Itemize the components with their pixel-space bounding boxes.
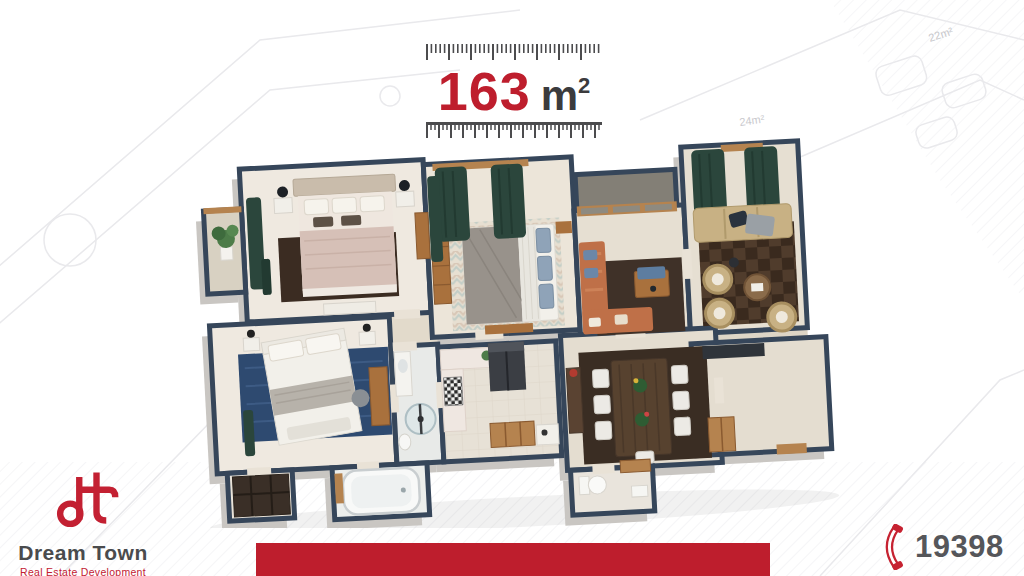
dresser xyxy=(323,301,376,315)
brand-logo: Dream Town Real Estate Development xyxy=(2,468,164,576)
wood-cabinet xyxy=(415,212,430,259)
wood-door xyxy=(620,459,651,473)
phone-icon xyxy=(872,524,906,570)
bathroom-2-furniture xyxy=(334,467,420,515)
closet-furniture xyxy=(232,474,290,517)
nightstand xyxy=(555,221,572,234)
ground-shadow xyxy=(209,480,840,528)
stove xyxy=(444,377,463,406)
bed-master xyxy=(462,224,559,325)
footer-accent-bar xyxy=(256,543,770,576)
nightstand xyxy=(274,197,293,213)
curtain-green xyxy=(261,259,272,295)
phone-number: 19398 xyxy=(915,529,1004,565)
desk xyxy=(369,367,390,426)
washbasin xyxy=(631,485,648,497)
floor-plan-render xyxy=(185,128,840,528)
vanity xyxy=(394,352,412,397)
toilet xyxy=(398,434,411,451)
entrance-door xyxy=(776,443,806,455)
round-table xyxy=(744,274,771,301)
wood-cabinets xyxy=(490,421,535,447)
bed-double xyxy=(298,191,397,297)
area-value: 163 xyxy=(438,64,531,118)
area-unit-base: m xyxy=(541,72,578,119)
area-figure: 163 m2 xyxy=(438,64,591,118)
plant-pot xyxy=(220,247,233,261)
dining-room-furniture xyxy=(565,346,712,467)
sofa-beige xyxy=(693,203,793,242)
brand-name: Dream Town xyxy=(2,541,164,565)
faint-area-label: 24m² xyxy=(739,113,766,128)
refrigerator xyxy=(488,342,526,392)
hatch-band-top-right xyxy=(830,0,1024,300)
counter xyxy=(536,424,559,445)
nightstand xyxy=(396,191,415,207)
bed-double xyxy=(261,328,362,445)
contact-block: 19398 xyxy=(872,524,1004,570)
toilet xyxy=(579,475,607,494)
brand-tagline: Real Estate Development xyxy=(2,566,164,576)
dt-monogram-icon xyxy=(47,468,119,540)
area-unit-sup: 2 xyxy=(578,73,590,98)
wood-shelf xyxy=(334,473,344,503)
marketing-slide: 22m² 24m² 163 m2 xyxy=(0,0,1024,576)
nightstand xyxy=(359,331,376,345)
area-unit: m2 xyxy=(541,75,591,117)
nightstand xyxy=(243,337,260,351)
sideboard xyxy=(566,368,583,434)
ruler-top-icon xyxy=(426,44,602,62)
coffee-table xyxy=(634,266,670,298)
dining-table xyxy=(611,358,672,457)
